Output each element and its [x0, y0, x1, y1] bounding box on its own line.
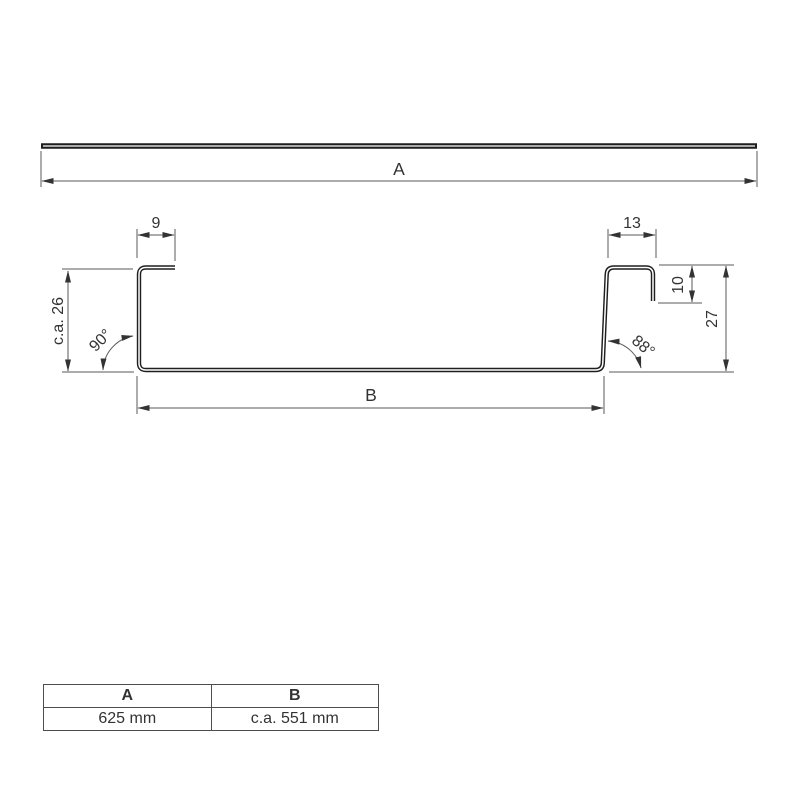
dim-9-group: 9	[137, 215, 175, 261]
table-header-b: B	[211, 685, 379, 708]
angle-90-group: 90°	[86, 326, 133, 370]
dim-b-group: B	[137, 376, 604, 414]
dim-27-label: 27	[704, 310, 721, 328]
dimension-table: A B 625 mm c.a. 551 mm	[43, 684, 379, 731]
table-value-row: 625 mm c.a. 551 mm	[44, 708, 379, 731]
profile-outline	[139, 268, 653, 371]
table-header-a: A	[44, 685, 212, 708]
dim-ca26-label: c.a. 26	[50, 297, 67, 345]
table-value-a: 625 mm	[44, 708, 212, 731]
profile-outline-core	[139, 268, 653, 371]
angle-88-group: 88°	[608, 332, 658, 368]
angle-88-label: 88°	[628, 332, 657, 361]
profile-drawing-svg: A 9 13 c.a. 26	[0, 0, 800, 800]
dim-9-label: 9	[152, 215, 161, 232]
technical-drawing-page: A 9 13 c.a. 26	[0, 0, 800, 800]
table-header-row: A B	[44, 685, 379, 708]
dim-10-label: 10	[670, 276, 687, 294]
dim-b-label: B	[365, 385, 377, 405]
dim-ca26-group: c.a. 26	[50, 269, 134, 372]
dim-10-group: 10	[658, 265, 734, 303]
angle-90-label: 90°	[86, 326, 115, 355]
dim-13-group: 13	[608, 215, 656, 258]
table-value-b: c.a. 551 mm	[211, 708, 379, 731]
dim-a-label: A	[393, 159, 405, 179]
dim-13-label: 13	[623, 215, 641, 232]
profile-section-group	[139, 268, 653, 371]
top-view-group: A	[41, 146, 757, 187]
